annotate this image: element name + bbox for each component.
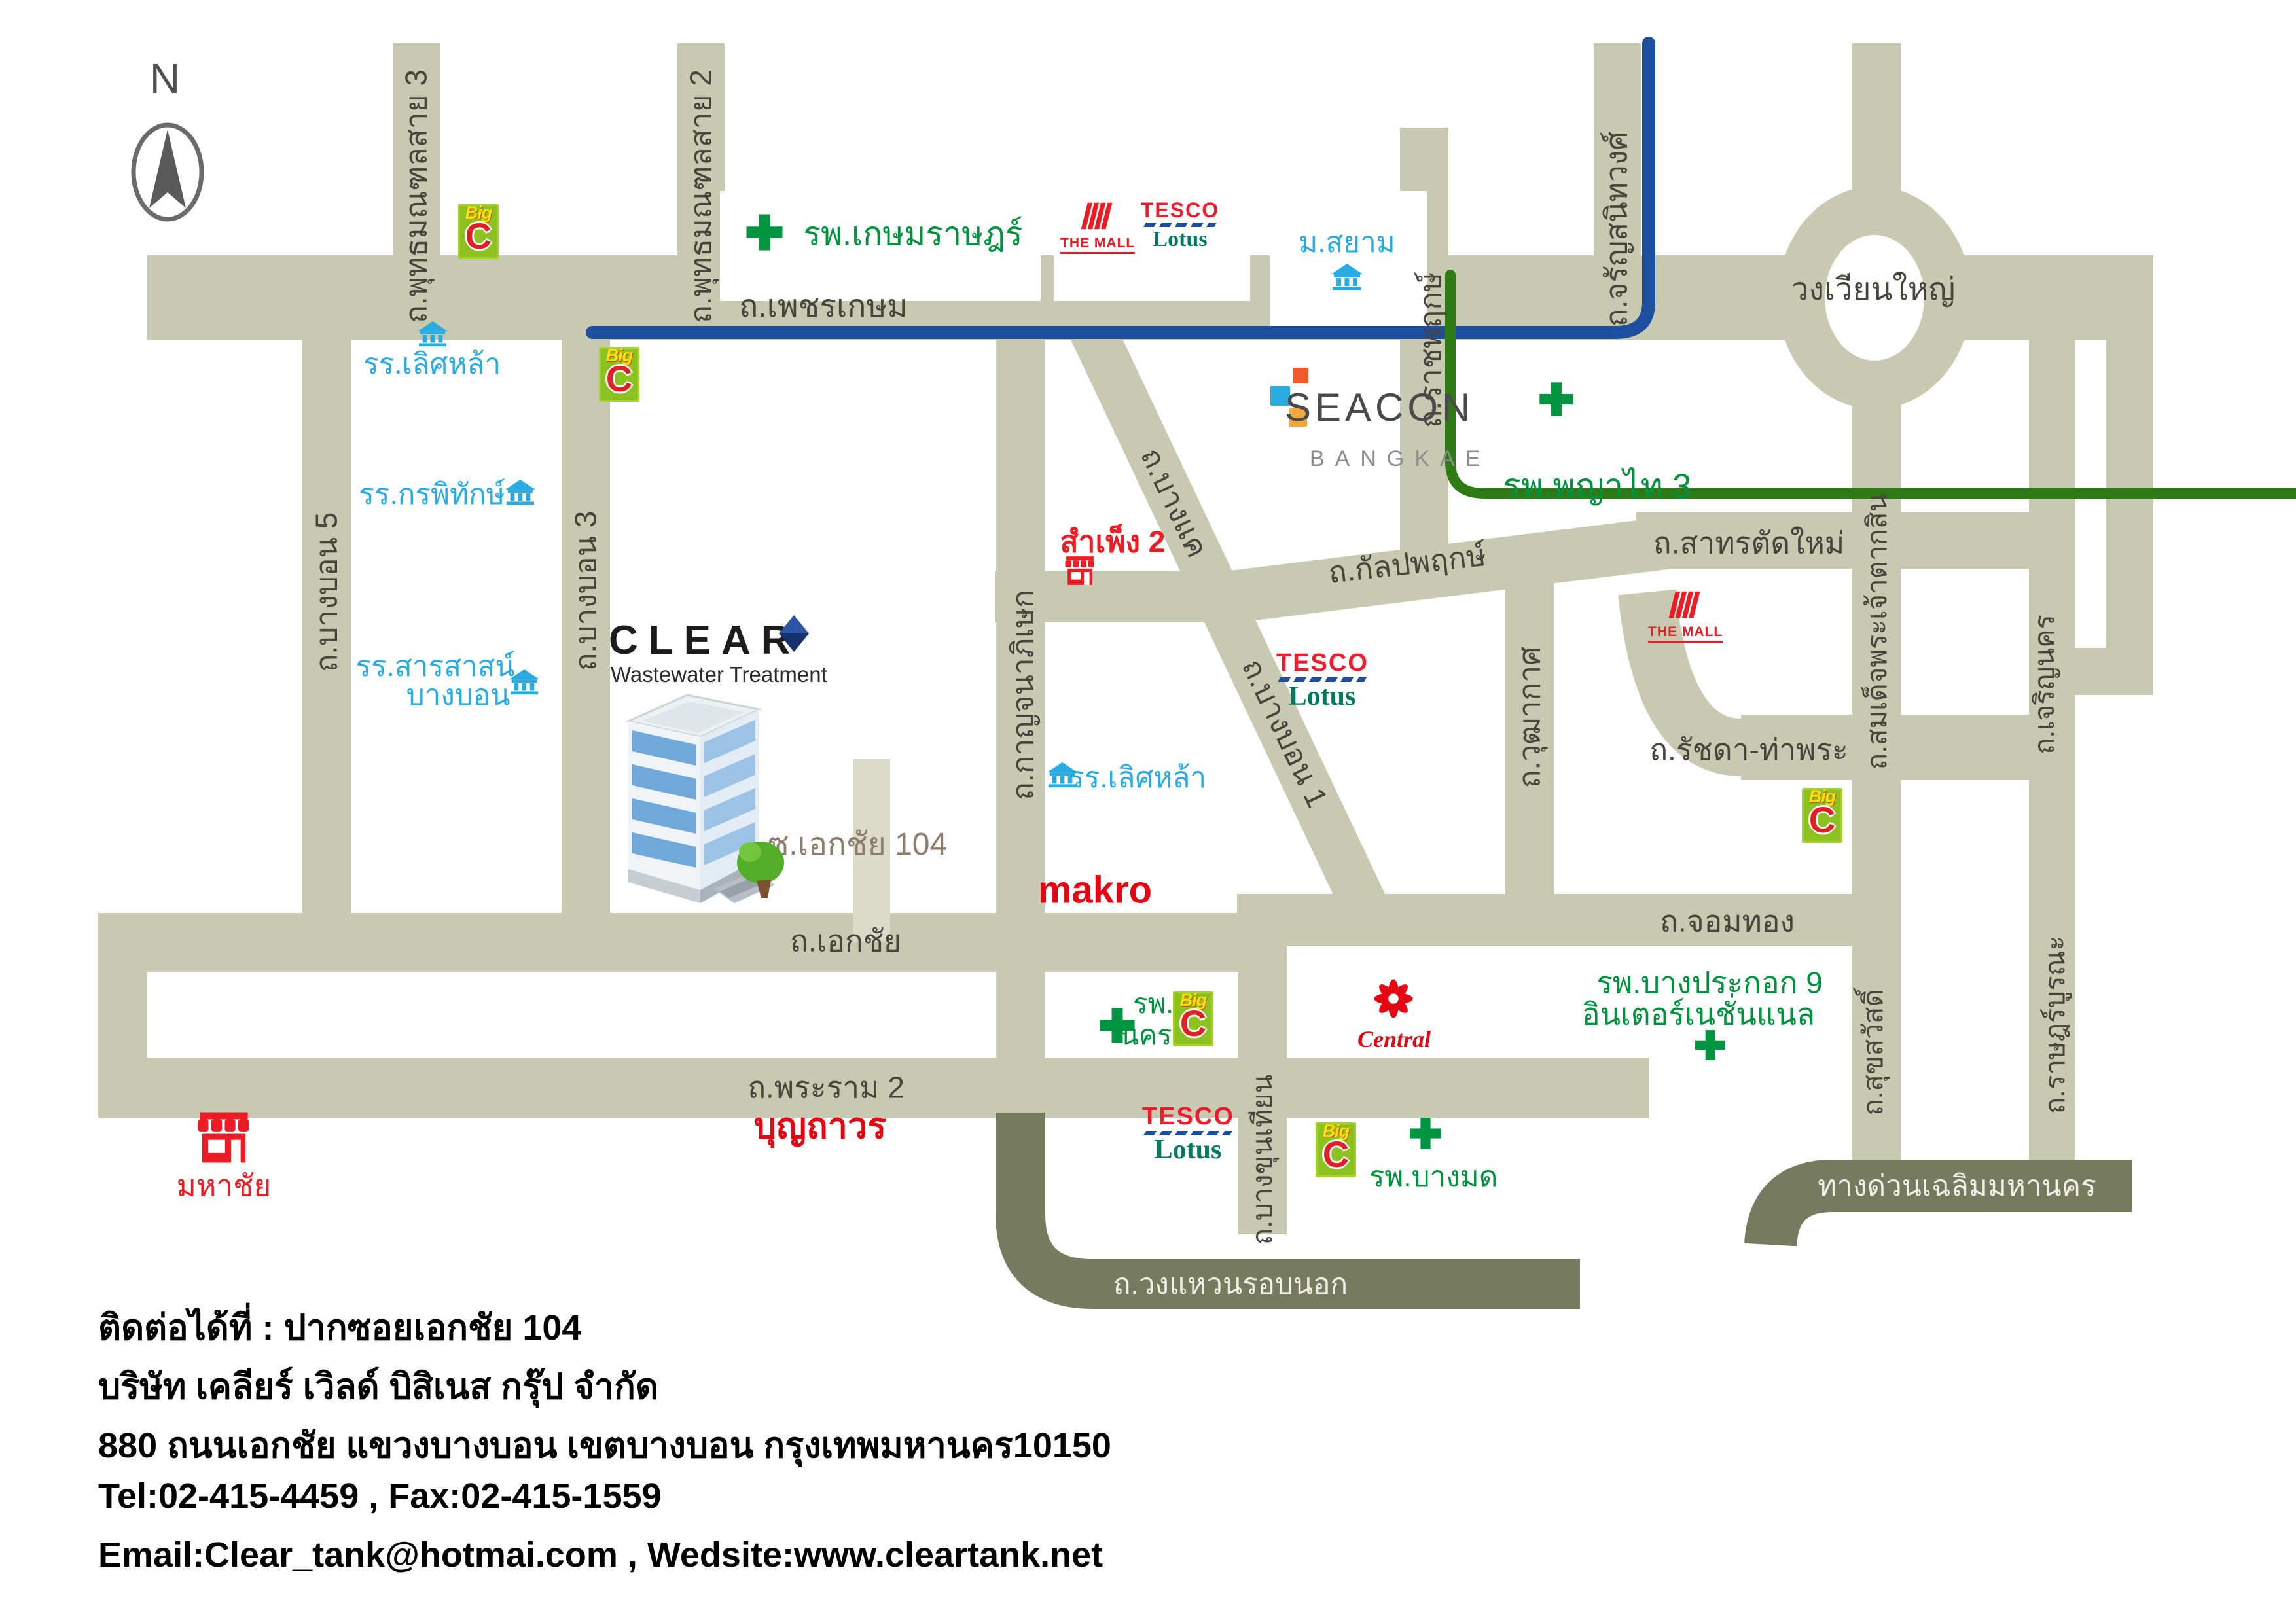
label-kasemrat-hospital: รพ.เกษมราษฎร์	[803, 209, 1022, 260]
label-suksawat: ถ.สุขสวัสดิ์	[1852, 989, 1895, 1116]
bigc-logo-nakhonthon: Big C	[1173, 991, 1213, 1046]
label-charansanitwong: ถ.จรัญสนิทวงศ์	[1593, 132, 1641, 327]
tesco-dashes	[1143, 1131, 1232, 1135]
tesco-lotus-logo-kalpaphruek: TESCO Lotus	[1276, 651, 1368, 708]
seacon-square-orange	[1293, 368, 1308, 383]
label-soi-ekkachai104: ซ.เอกชัย 104	[768, 819, 947, 869]
label-lertlah-school-2: รร.เลิศหล้า	[1069, 755, 1206, 800]
label-charoennakhon: ถ.เจริญนคร	[2023, 615, 2066, 755]
school-icon-kornpitack	[505, 479, 535, 505]
themall-text: THE MALL	[1648, 624, 1723, 643]
label-phutthamonthon3: ถ.พุทธมณฑลสาย 3	[393, 69, 440, 323]
contact-line-1: ติดต่อได้ที่ : ปากซอยเอกชัย 104	[98, 1299, 581, 1355]
bangkok-location-map: N ถ.เพชรเกษม ถ.พุทธมณฑลสาย 3 ถ.พุทธมณฑลส…	[0, 0, 2296, 1623]
contact-line-4: Tel:02-415-4459 , Fax:02-415-1559	[98, 1476, 662, 1516]
school-icon-msiam	[1331, 263, 1363, 291]
label-wuthakat: ถ.วุฒากาศ	[1506, 647, 1554, 789]
hospital-cross-icon-kasemrat	[745, 213, 784, 252]
bigc-c-text: C	[458, 221, 499, 252]
hospital-cross-icon-bangpakok	[1694, 1029, 1727, 1061]
central-flower-icon	[1373, 976, 1414, 1021]
label-somdet-taksin: ถ.สมเด็จพระเจ้าตากสิน	[1856, 493, 1899, 770]
label-bangbon3: ถ.บางบอน 3	[562, 511, 610, 671]
seacon-name-text: SEACON	[1285, 385, 1474, 430]
compass-icon	[128, 103, 207, 241]
label-ekkachai: ถ.เอกชัย	[790, 918, 901, 965]
contact-line-2: บริษัท เคลียร์ เวิลด์ บิสิเนส กรุ๊ป จำกั…	[98, 1358, 658, 1414]
clear-diamond-icon	[779, 615, 809, 652]
hospital-cross-icon-phayathai	[1538, 381, 1575, 418]
hospital-cross-icon-nakhonthon	[1098, 1007, 1136, 1044]
bigc-c-text: C	[1316, 1139, 1356, 1170]
tesco-text: TESCO	[1142, 1105, 1234, 1128]
tesco-lotus-logo-rama2: TESCO Lotus	[1142, 1105, 1234, 1162]
label-phutthamonthon2: ถ.พุทธมณฑลสาย 2	[677, 69, 725, 323]
label-lertlah-school-1: รร.เลิศหล้า	[363, 341, 501, 387]
label-msiam-university: ม.สยาม	[1299, 219, 1395, 265]
school-icon-lertlah2	[1047, 762, 1077, 788]
lotus-text: Lotus	[1124, 230, 1236, 249]
contact-line-3: 880 ถนนเอกชัย แขวงบางบอน เขตบางบอน กรุงเ…	[98, 1417, 1111, 1473]
themall-bars-icon	[1666, 589, 1704, 620]
bigc-logo-ratchada: Big C	[1802, 788, 1842, 843]
label-chomthong: ถ.จอมทอง	[1660, 898, 1795, 946]
tesco-text: TESCO	[1124, 200, 1236, 220]
shop-icon-mahachai	[195, 1111, 253, 1164]
label-bangkhunthian: ถ.บางขุนเทียน	[1241, 1075, 1284, 1245]
themall-bars-icon	[1079, 200, 1117, 232]
bigc-logo-bangmod: Big C	[1316, 1122, 1356, 1177]
tesco-dashes	[1278, 677, 1367, 682]
clear-logo-text: CLEAR	[609, 617, 801, 664]
seacon-sub-text: BANGKAE	[1310, 446, 1490, 472]
label-ratchada-thapra: ถ.รัชดา-ท่าพระ	[1649, 726, 1848, 774]
label-sarasas-school-line2: บางบอน	[406, 672, 511, 718]
boonthavorn-logo: บุญถาวร	[754, 1097, 887, 1154]
bigc-logo-phetkasem: Big C	[599, 347, 639, 402]
themall-logo-sathon: THE MALL	[1648, 589, 1723, 643]
label-wongwianyai: วงเวียนใหญ่	[1791, 264, 1956, 314]
bigc-logo-phutthamonthon: Big C	[458, 204, 499, 259]
label-bangbon5: ถ.บางบอน 5	[303, 512, 351, 673]
tesco-lotus-logo-phetkasem: TESCO Lotus	[1124, 200, 1236, 249]
tesco-dashes	[1143, 223, 1217, 227]
label-mahachai: มหาชัย	[177, 1162, 272, 1210]
school-icon-sarasas	[509, 669, 539, 695]
label-phetkasem: ถ.เพชรเกษม	[739, 281, 908, 331]
makro-logo: makro	[1038, 868, 1152, 912]
label-expressway: ทางด่วนเฉลิมมหานคร	[1818, 1163, 2096, 1209]
hospital-cross-icon-bangmod	[1408, 1116, 1443, 1150]
seacon-bangkae-logo: SEACON BANGKAE	[1266, 366, 1489, 497]
central-logo-text: Central	[1357, 1026, 1431, 1053]
lotus-text: Lotus	[1276, 685, 1368, 708]
contact-line-5: Email:Clear_tank@hotmai.com , Wedsite:ww…	[98, 1535, 1103, 1575]
label-sathon-tatmai: ถ.สาทรตัดใหม่	[1653, 520, 1844, 567]
company-building-illustration	[622, 681, 785, 906]
label-kanchanaphisek: ถ.กาญจนาภิเษก	[999, 590, 1047, 800]
tesco-text: TESCO	[1276, 651, 1368, 675]
bigc-c-text: C	[1173, 1008, 1213, 1039]
bigc-c-text: C	[599, 363, 639, 395]
label-phayathai3-hospital: รพ.พญาไท 3	[1503, 459, 1691, 513]
bigc-c-text: C	[1802, 804, 1842, 836]
shop-icon-sampheng	[1064, 556, 1096, 585]
label-wongwaen: ถ.วงแหวนรอบนอก	[1113, 1261, 1348, 1307]
label-kornpitack-school: รร.กรพิทักษ์	[359, 471, 505, 517]
lotus-text: Lotus	[1142, 1138, 1234, 1162]
school-icon-lertlah1	[418, 321, 448, 347]
label-ratburana: ถ.ราษฎร์บูรณะ	[2034, 936, 2077, 1114]
label-bangmod-hospital: รพ.บางมด	[1369, 1154, 1498, 1200]
compass-north-label: N	[150, 54, 180, 103]
